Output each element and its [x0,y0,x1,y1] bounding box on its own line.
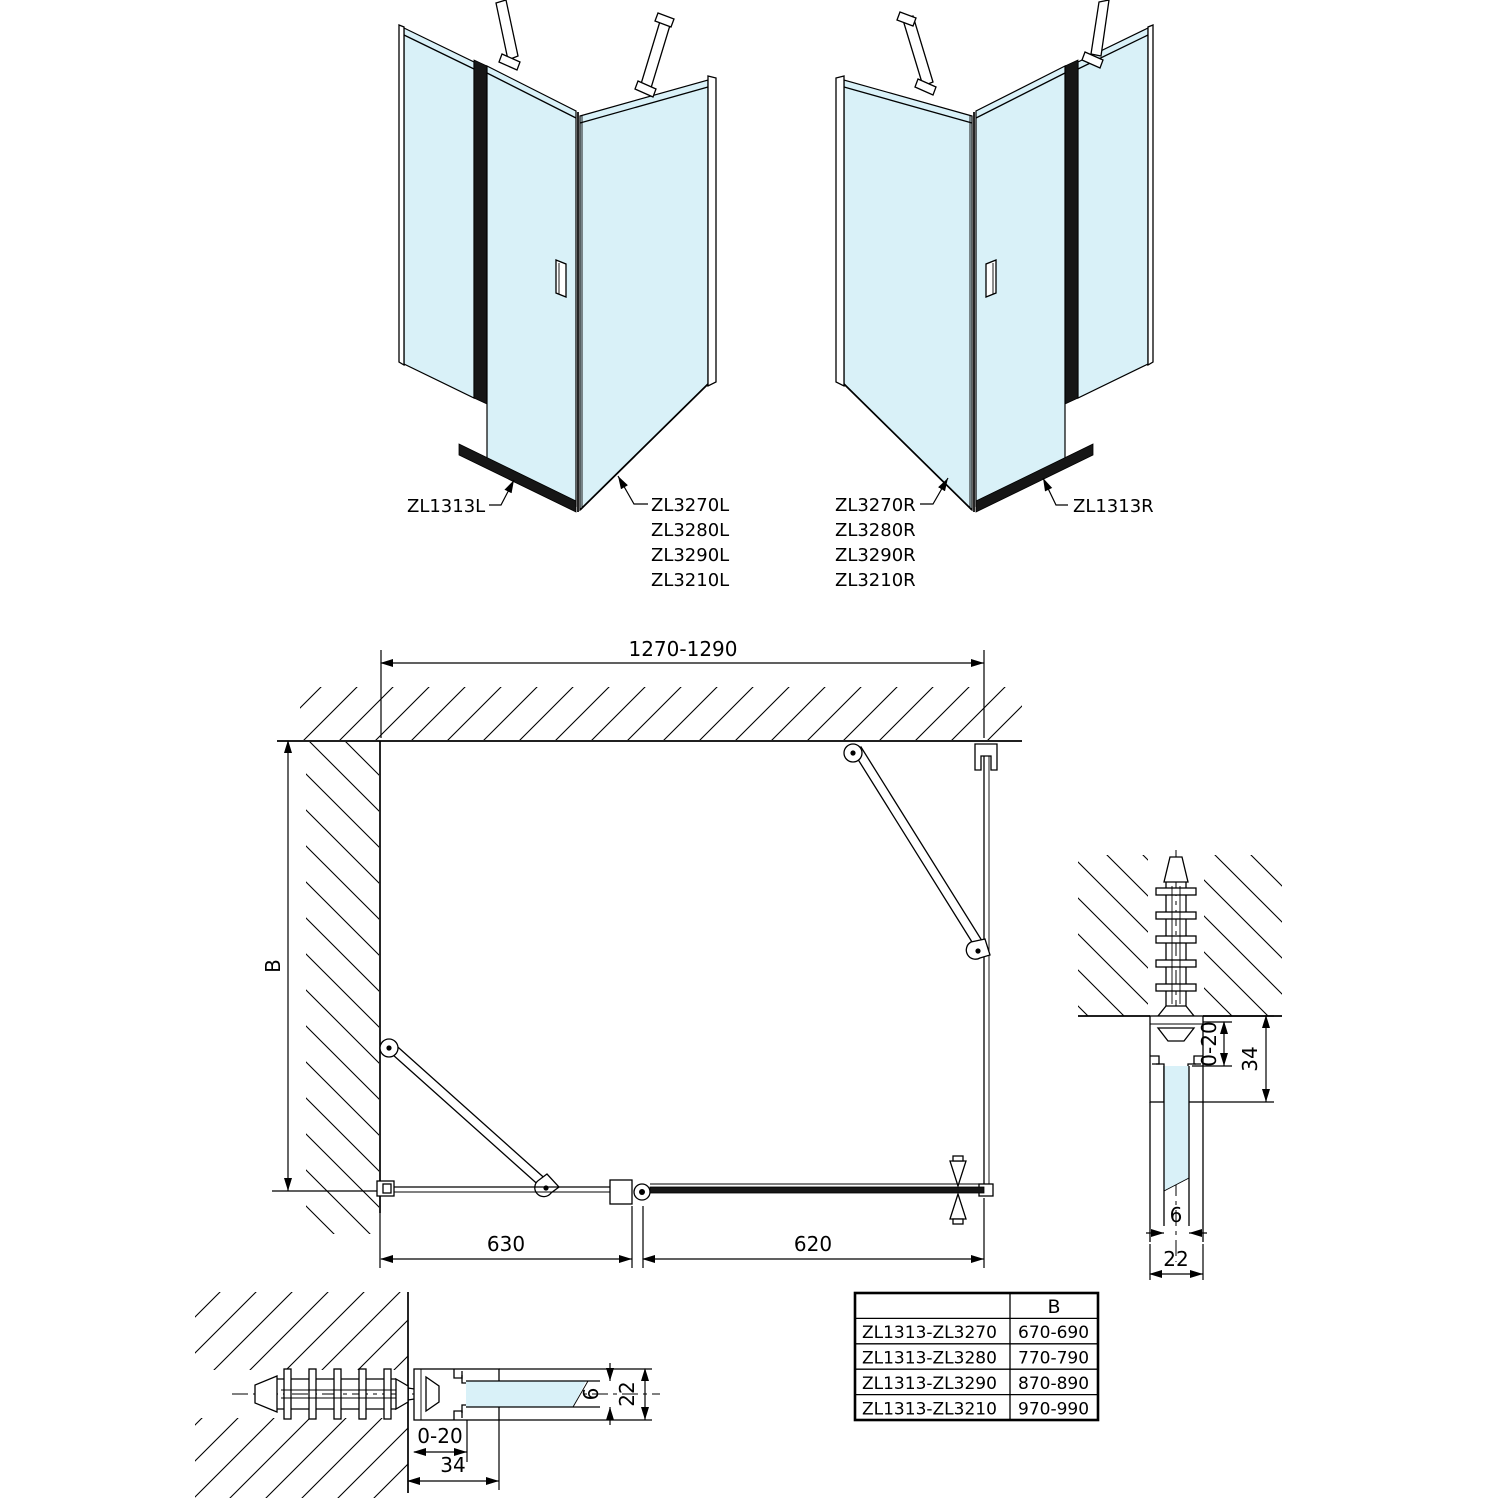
left-isometric-view: ZL1313L ZL3270L ZL3280L ZL3290L ZL3210L [399,0,729,591]
left-view-hinge-profile [474,60,487,404]
plan-right-panel-wall-bracket [975,744,997,770]
size-table: B ZL1313-ZL3270 670-690 ZL1313-ZL3280 77… [855,1293,1098,1420]
detail-bottom-glass [466,1381,586,1407]
detail-right-adjust-dim: 0-20 [1197,1021,1221,1066]
size-table-cell-models-0: ZL1313-ZL3270 [862,1323,997,1343]
right-view-panel-leader [1043,478,1068,505]
left-view-door-label-2: ZL3290L [651,545,729,566]
right-view-door-label-0: ZL3270R [835,495,916,516]
right-view-panel-label: ZL1313R [1073,496,1154,517]
size-table-cell-b-3: 970-990 [1018,1400,1089,1420]
detail-right-width-dim: 22 [1163,1247,1188,1271]
right-view-hinge-profile [1065,60,1078,404]
detail-right-glass-dim: 6 [1170,1203,1183,1227]
left-view-ceiling-brace-left [496,0,520,70]
shower-enclosure-technical-drawing: ZL1313L ZL3270L ZL3280L ZL3290L ZL3210L [0,0,1500,1500]
plan-brace-left [380,1039,559,1197]
size-table-row-1: ZL1313-ZL3280 770-790 [862,1349,1089,1369]
detail-bottom-width-dim: 22 [615,1381,639,1406]
plan-view: 1270-1290 B [261,637,1022,1268]
plan-brace-right [844,744,990,959]
right-view-door-label-2: ZL3290R [835,545,916,566]
plan-door-hinge [610,1180,650,1204]
left-view-panel-leader [489,480,514,505]
left-view-door-label-1: ZL3280L [651,520,729,541]
size-table-cell-models-2: ZL1313-ZL3290 [862,1374,997,1394]
right-view-door-handle [986,260,996,297]
left-view-wall-profile [399,25,404,365]
plan-top-wall-hatch [300,687,1022,740]
detail-bottom-depth-dim: 34 [440,1453,465,1477]
size-table-row-0: ZL1313-ZL3270 670-690 [862,1323,1089,1343]
right-view-side-panel-edge-profile [836,76,844,386]
right-view-side-panel-glass [844,80,972,510]
left-view-fixed-panel-glass [404,28,474,398]
plan-fixed-dim: 630 [487,1232,525,1256]
size-table-header-b: B [1047,1296,1060,1318]
size-table-row-2: ZL1313-ZL3290 870-890 [862,1374,1089,1394]
left-view-door-label-0: ZL3270L [651,495,729,516]
left-view-side-panel-glass [580,80,708,510]
left-view-panel-label: ZL1313L [407,496,485,517]
right-view-ceiling-brace-left [897,12,936,95]
size-table-cell-b-2: 870-890 [1018,1374,1089,1394]
size-table-cell-b-1: 770-790 [1018,1349,1089,1369]
right-isometric-view: ZL3270R ZL3280R ZL3290R ZL3210R ZL1313R [835,0,1154,591]
detail-right-depth-dim: 34 [1238,1046,1262,1071]
size-table-cell-models-3: ZL1313-ZL3210 [862,1400,997,1420]
detail-right-glass [1164,1066,1189,1191]
wall-profile-detail-horizontal: 0-20 34 6 22 [193,1292,660,1498]
plan-door-dim: 620 [794,1232,832,1256]
left-view-door-leader [618,476,648,504]
size-table-cell-models-1: ZL1313-ZL3280 [862,1349,997,1369]
size-table-cell-b-0: 670-690 [1018,1323,1089,1343]
detail-bottom-glass-dim: 6 [579,1388,603,1401]
wall-profile-detail-vertical: 0-20 34 6 22 [1078,850,1282,1280]
right-view-door-label-3: ZL3210R [835,570,916,591]
plan-width-dim: 1270-1290 [628,637,737,661]
right-view-door-label-1: ZL3280R [835,520,916,541]
left-view-door-handle [556,260,566,297]
right-view-wall-profile [1148,25,1153,365]
left-view-side-panel-edge-profile [708,76,716,386]
plan-left-wall-hatch [306,742,379,1234]
drawing-svg: ZL1313L ZL3270L ZL3280L ZL3290L ZL3210L [0,0,1500,1500]
size-table-row-3: ZL1313-ZL3210 970-990 [862,1400,1089,1420]
detail-bottom-adjust-dim: 0-20 [417,1424,462,1448]
left-view-door-label-3: ZL3210L [651,570,729,591]
plan-depth-dim: B [261,959,285,973]
right-view-fixed-panel-glass [1078,28,1148,398]
left-view-ceiling-brace-right [635,13,674,97]
plan-door-panel [650,1187,984,1193]
